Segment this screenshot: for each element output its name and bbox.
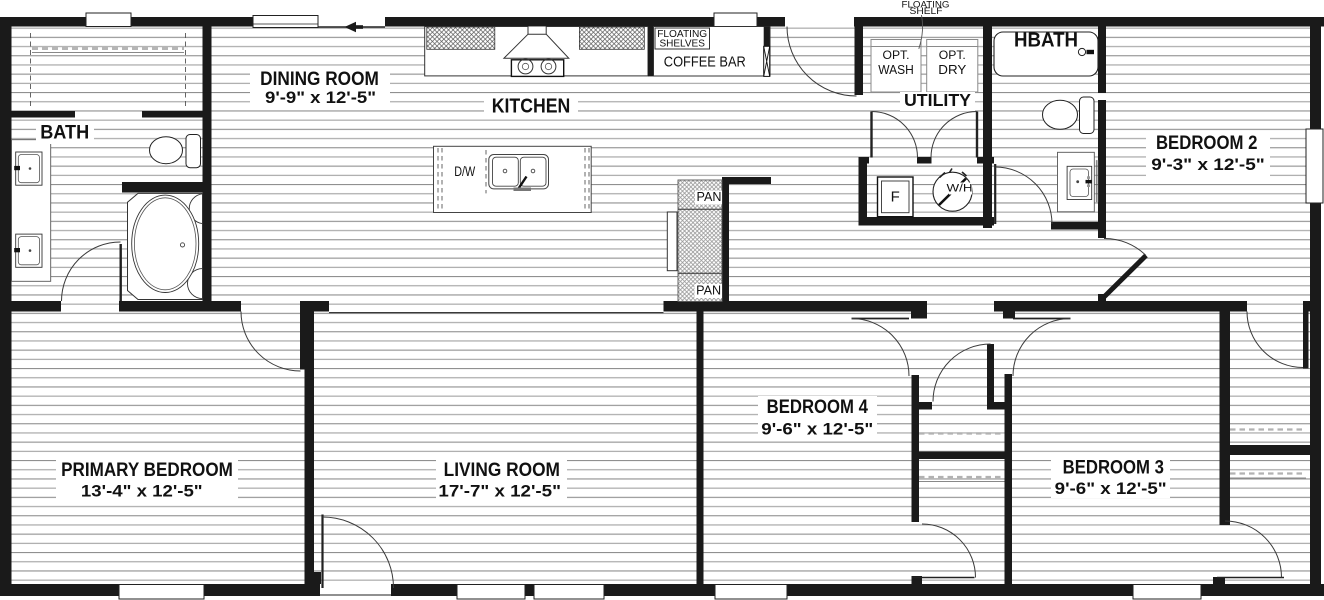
svg-text:SHELVES: SHELVES <box>659 38 705 50</box>
svg-text:13'-4" x 12'-5": 13'-4" x 12'-5" <box>81 481 203 500</box>
svg-text:COFFEE BAR: COFFEE BAR <box>664 54 746 70</box>
svg-text:PAN: PAN <box>697 189 722 204</box>
svg-text:DINING ROOM: DINING ROOM <box>260 69 379 90</box>
svg-text:9'-9" x 12'-5": 9'-9" x 12'-5" <box>265 88 376 107</box>
svg-text:SHELF: SHELF <box>910 6 943 17</box>
svg-text:F: F <box>891 188 900 205</box>
svg-text:17'-7" x 12'-5": 17'-7" x 12'-5" <box>438 481 561 500</box>
svg-text:BEDROOM 4: BEDROOM 4 <box>767 397 869 418</box>
svg-text:OPT.: OPT. <box>883 48 910 62</box>
svg-text:9'-6" x 12'-5": 9'-6" x 12'-5" <box>1055 479 1167 498</box>
svg-text:OPT.: OPT. <box>939 48 966 62</box>
svg-text:9'-3" x 12'-5": 9'-3" x 12'-5" <box>1151 155 1265 174</box>
svg-text:BEDROOM 3: BEDROOM 3 <box>1063 458 1164 479</box>
svg-text:W/H: W/H <box>947 182 973 194</box>
svg-text:KITCHEN: KITCHEN <box>492 95 571 118</box>
svg-text:PRIMARY BEDROOM: PRIMARY BEDROOM <box>61 460 233 481</box>
svg-text:PAN: PAN <box>696 283 721 298</box>
svg-text:WASH: WASH <box>878 62 914 77</box>
svg-text:UTILITY: UTILITY <box>904 90 971 110</box>
svg-text:BATH: BATH <box>40 122 89 143</box>
svg-text:BEDROOM 2: BEDROOM 2 <box>1156 133 1258 154</box>
svg-text:D/W: D/W <box>454 164 475 179</box>
svg-text:DRY: DRY <box>938 62 966 77</box>
svg-text:HBATH: HBATH <box>1014 28 1078 51</box>
svg-text:9'-6" x 12'-5": 9'-6" x 12'-5" <box>761 419 873 438</box>
svg-text:LIVING ROOM: LIVING ROOM <box>444 460 560 481</box>
